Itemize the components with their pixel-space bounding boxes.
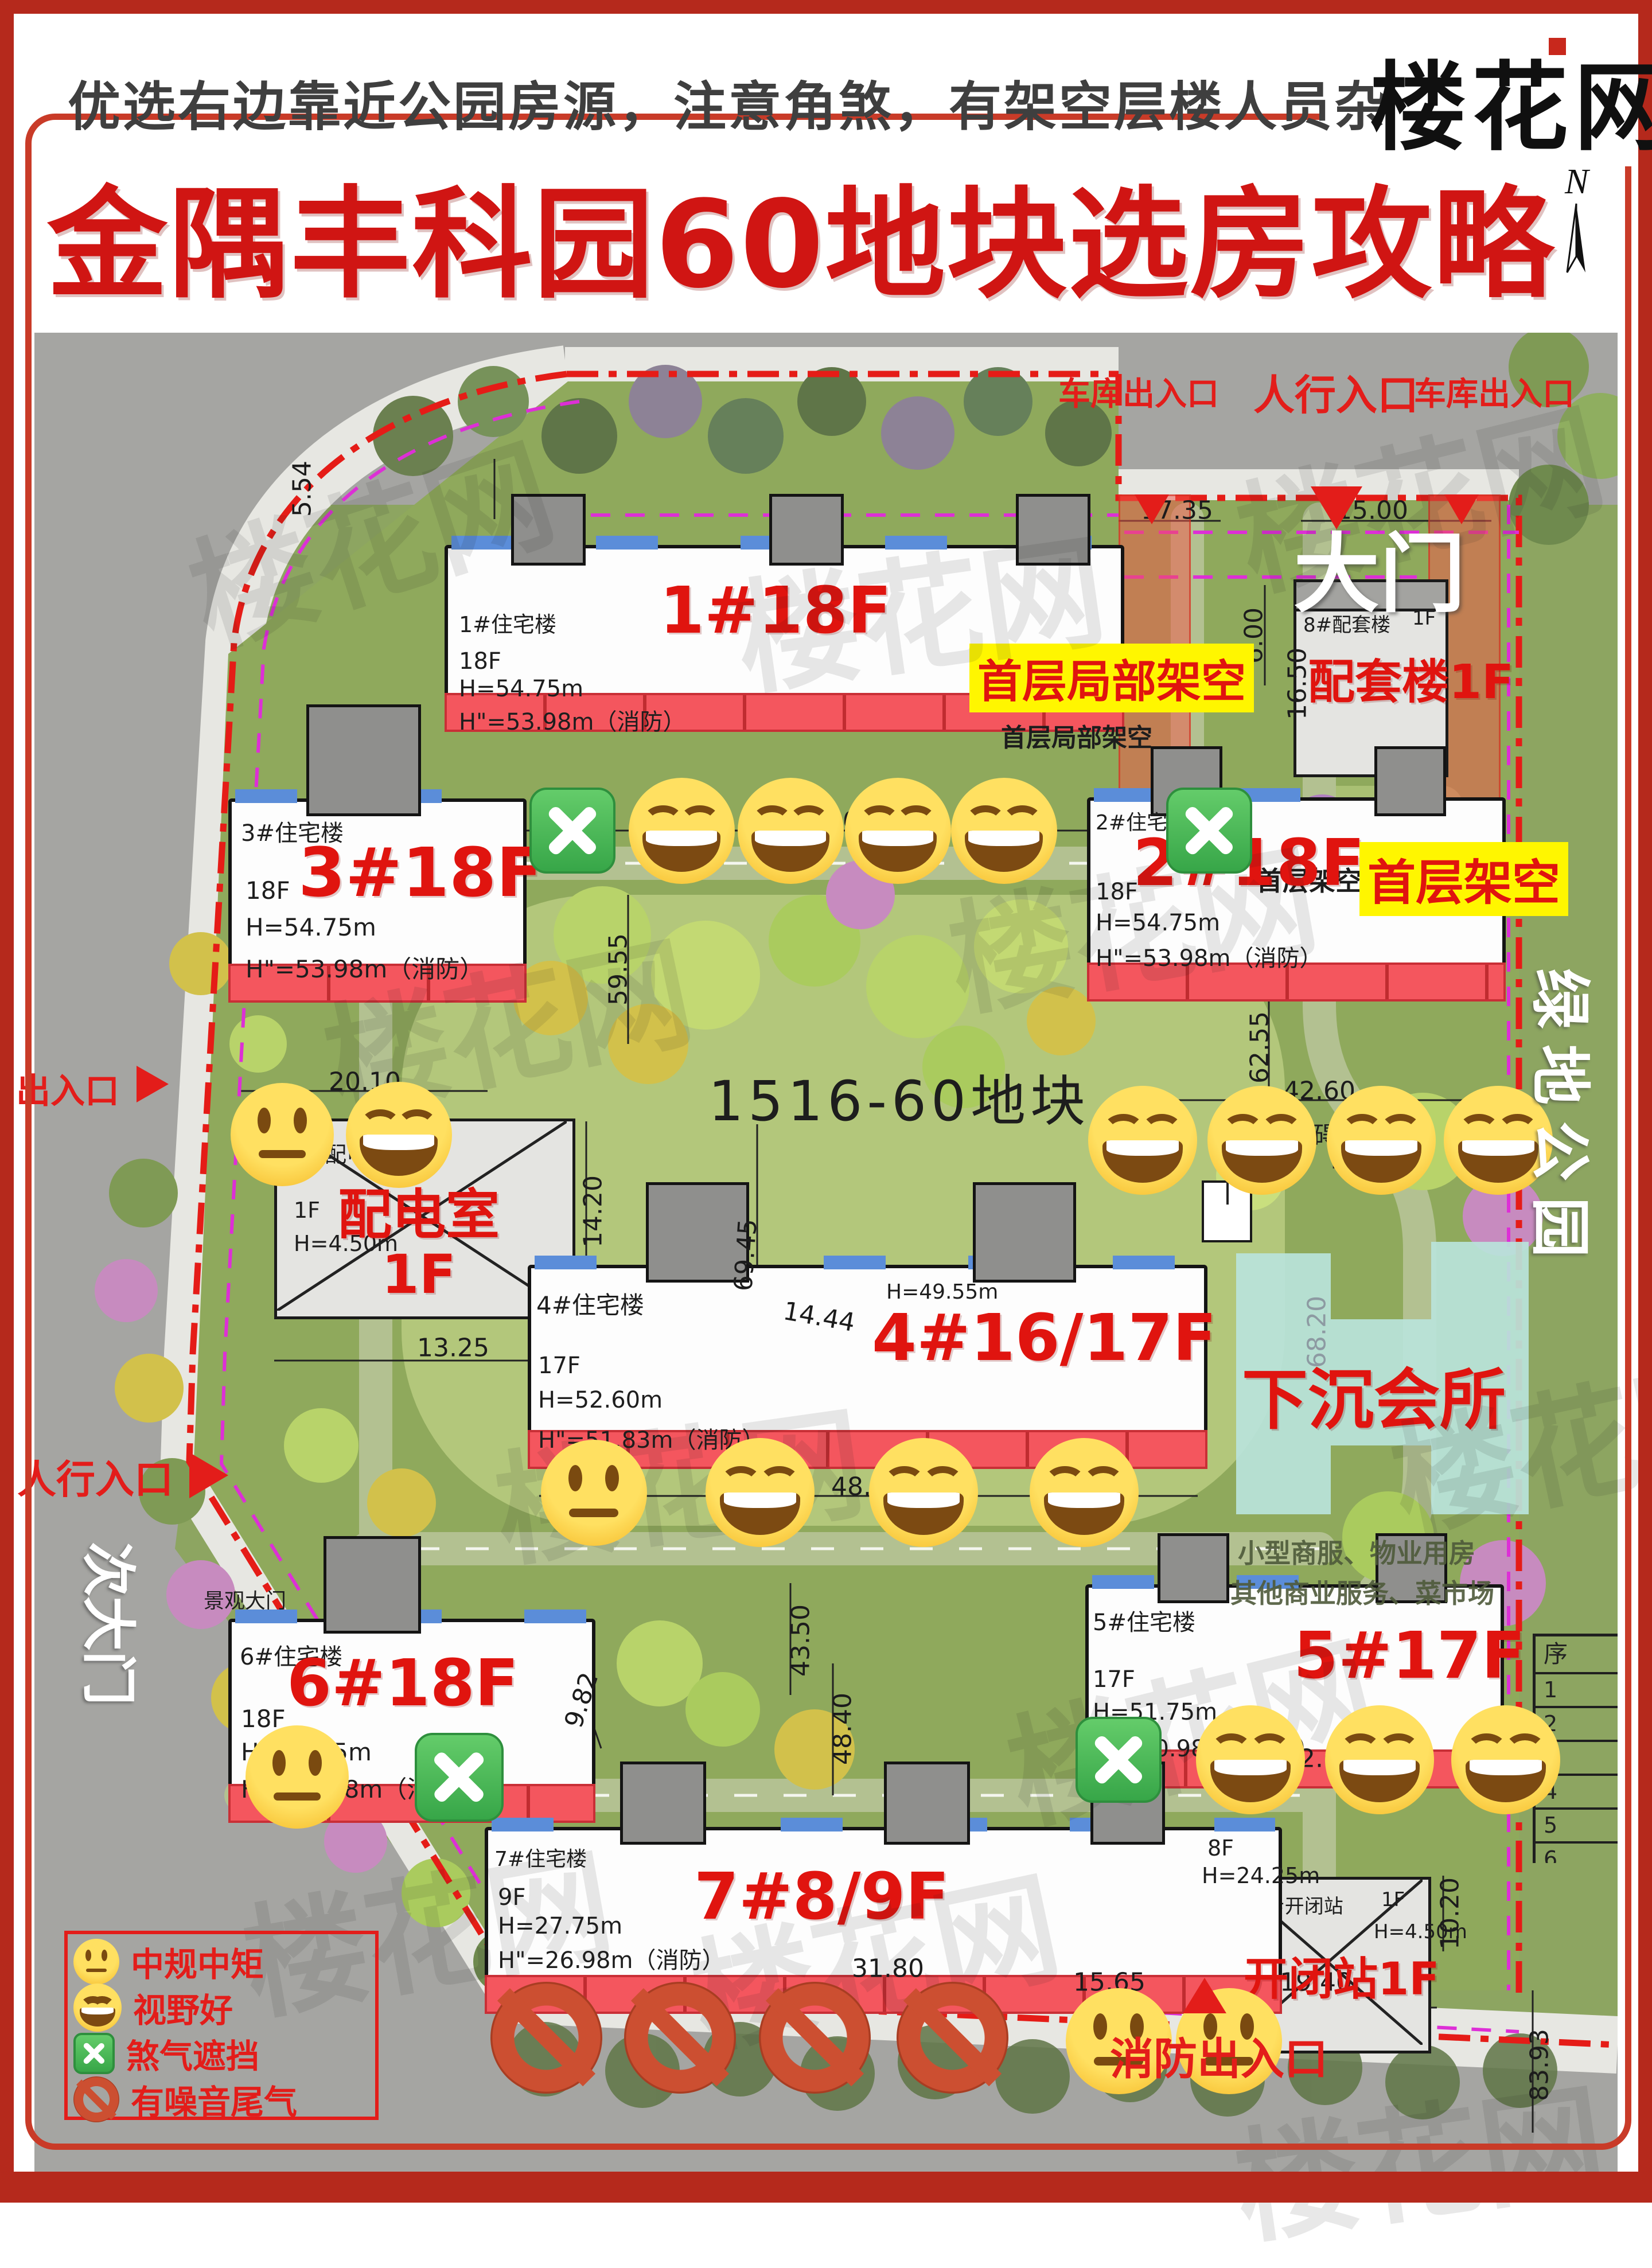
secondary-gate-label: 次大门 xyxy=(73,1542,152,1705)
nosign-emoji xyxy=(490,1982,602,2094)
legend-row-noise: 有噪音尾气 xyxy=(73,2076,369,2122)
b6-red-tag: 6#18F xyxy=(287,1646,519,1721)
b5-floors: 17F xyxy=(1093,1666,1135,1693)
b2-height-fire: H"=53.98m（消防） xyxy=(1096,940,1322,973)
dimension-label: 14.20 xyxy=(579,1175,608,1248)
side-exit-label: 出入口 xyxy=(16,1063,119,1113)
stair-core xyxy=(1016,494,1090,566)
switch-red-tag: 开闭站1F xyxy=(1244,1943,1440,2008)
logo-stamp-icon xyxy=(1549,38,1566,55)
dimension-label: 69.45 xyxy=(728,1218,763,1292)
green-x-icon xyxy=(73,2033,115,2074)
dimension-label: 48.40 xyxy=(828,1693,858,1765)
xmark-emoji xyxy=(529,788,615,874)
legend-label: 煞气遮挡 xyxy=(126,2029,259,2078)
b3-height-fire: H"=53.98m（消防） xyxy=(246,950,484,985)
stair-core xyxy=(306,704,421,816)
xmark-emoji xyxy=(415,1733,504,1822)
landscape-gate-left-label: 景观大门 xyxy=(204,1584,286,1614)
b1-height-fire: H"=53.98m（消防） xyxy=(459,703,685,736)
nosign-emoji xyxy=(624,1982,736,2094)
club-services-line1: 小型商服、物业用房 xyxy=(1238,1533,1475,1571)
b3-floors: 18F xyxy=(246,876,290,905)
fire-exit-label: 消防出入口 xyxy=(1110,2024,1328,2087)
legend-row-blocked: 煞气遮挡 xyxy=(73,2031,369,2076)
b7-floors: 9F xyxy=(498,1884,525,1911)
neutral-emoji xyxy=(231,1083,334,1186)
legend-row-goodview: 视野好 xyxy=(73,1985,369,2031)
dimension-label: 43.50 xyxy=(786,1604,816,1677)
club-services-line2: 其他商业服务、菜市场 xyxy=(1230,1573,1494,1611)
grin-emoji xyxy=(869,1438,978,1547)
dimension-label: 83.93 xyxy=(1525,2029,1554,2101)
b1-stilt-note: 首层局部架空 xyxy=(1001,717,1152,754)
no-entry-icon xyxy=(73,2076,119,2122)
site-logo: 楼花网 xyxy=(1370,30,1652,169)
page-subtitle: 优选右边靠近公园房源，注意角煞，有架空层楼人员杂 xyxy=(68,64,1389,141)
side-table-row: 1 xyxy=(1536,1672,1618,1706)
b1-red-tag: 1#18F xyxy=(660,574,891,648)
legend-label: 中规中矩 xyxy=(131,1938,264,1986)
grin-emoji xyxy=(706,1438,815,1547)
grin-emoji xyxy=(346,1082,452,1188)
stair-core xyxy=(511,494,586,566)
legend-label: 视野好 xyxy=(133,1983,233,2032)
stair-core xyxy=(973,1182,1076,1283)
grin-emoji xyxy=(1451,1705,1560,1814)
grin-emoji xyxy=(845,778,951,884)
stair-core xyxy=(1158,1533,1229,1603)
b4-extra-height: H=49.55m xyxy=(886,1280,998,1304)
legend: 中规中矩 视野好 煞气遮挡 有噪音尾气 xyxy=(64,1931,379,2120)
grin-emoji xyxy=(738,778,844,884)
dimension-label: 59.55 xyxy=(604,933,633,1006)
park-label: 绿地公园 xyxy=(1521,968,1608,1273)
neutral-emoji xyxy=(246,1725,349,1829)
b2-height: H=54.75m xyxy=(1096,910,1220,936)
grin-face-icon xyxy=(73,1983,122,2032)
stair-core xyxy=(1374,746,1446,816)
b5-red-tag: 5#17F xyxy=(1293,1619,1525,1693)
grin-emoji xyxy=(1196,1705,1305,1814)
gate-arrow-icon xyxy=(1135,494,1169,524)
garage-entrance-left-label: 车库出入口 xyxy=(1058,368,1219,415)
stair-core xyxy=(620,1762,706,1845)
b7-extra-floors: 8F xyxy=(1207,1836,1234,1861)
grin-emoji xyxy=(629,778,735,884)
b7-height: H=27.75m xyxy=(498,1913,622,1939)
balcony-strip xyxy=(535,1256,1201,1269)
bottom-accent-bar xyxy=(14,2172,1638,2189)
b3-red-tag: 3#18F xyxy=(298,833,543,912)
grin-emoji xyxy=(1207,1086,1316,1195)
legend-row-average: 中规中矩 xyxy=(73,1939,369,1985)
b1-height: H=54.75m xyxy=(459,676,583,702)
compass-n-label: N xyxy=(1565,162,1588,201)
neutral-face-icon xyxy=(73,1939,119,1985)
nosign-emoji xyxy=(759,1982,871,2094)
pedestrian-left-arrow-icon xyxy=(189,1452,228,1498)
grin-emoji xyxy=(951,778,1057,884)
podium-red-tag: 配套楼1F xyxy=(1308,644,1514,712)
b5-name: 5#住宅楼 xyxy=(1093,1604,1195,1637)
dimension-label: 10.20 xyxy=(1436,1877,1465,1950)
xmark-emoji xyxy=(1076,1717,1162,1803)
b4-height: H=52.60m xyxy=(538,1387,663,1413)
side-exit-arrow-icon xyxy=(137,1066,169,1102)
b1-floors: 18F xyxy=(459,648,501,675)
b4-red-tag: 4#16/17F xyxy=(872,1301,1217,1375)
power-red-tag-line2: 1F xyxy=(298,1249,539,1300)
b1-name: 1#住宅楼 xyxy=(459,607,556,638)
main-gate-label: 大门 xyxy=(1293,505,1466,629)
dimension-label: 62.55 xyxy=(1245,1011,1275,1084)
pedestrian-entrance-left-label: 人行入口 xyxy=(17,1448,173,1505)
grin-emoji xyxy=(1325,1705,1434,1814)
dimension-label: 31.80 xyxy=(852,1954,924,1983)
b7-red-tag: 7#8/9F xyxy=(694,1860,949,1934)
north-compass-icon: N xyxy=(1565,162,1588,286)
b2-stilt-badge: 首层架空 xyxy=(1359,842,1568,916)
fire-exit-arrow-icon xyxy=(1183,1978,1226,2013)
plot-label: 1516-60地块 xyxy=(708,1057,1090,1136)
nosign-emoji xyxy=(897,1982,1008,2094)
dimension-label: 5.54 xyxy=(288,461,317,517)
b7-name: 7#住宅楼 xyxy=(494,1842,587,1872)
page-title: 金隅丰科园60地块选房攻略 xyxy=(47,147,1554,321)
b4-name: 4#住宅楼 xyxy=(536,1286,644,1321)
grin-emoji xyxy=(1088,1086,1197,1195)
side-table-row: 6 xyxy=(1536,1841,1618,1863)
xmark-emoji xyxy=(1166,788,1252,874)
stair-core xyxy=(324,1536,421,1634)
grin-emoji xyxy=(1327,1086,1436,1195)
b4-floors: 17F xyxy=(538,1353,580,1379)
neutral-emoji xyxy=(541,1440,647,1546)
garage-entrance-right-label: 车库出入口 xyxy=(1414,368,1575,415)
clubhouse-red-tag: 下沉会所 xyxy=(1242,1347,1506,1442)
side-table-header: 序 xyxy=(1536,1636,1618,1672)
legend-label: 有噪音尾气 xyxy=(131,2075,297,2123)
side-table-row: 5 xyxy=(1536,1807,1618,1841)
stair-core xyxy=(769,494,844,566)
b7-height-fire: H"=26.98m（消防） xyxy=(498,1942,724,1975)
switch-floors: 1F xyxy=(1381,1888,1405,1911)
b7-extra-height: H=24.25m xyxy=(1202,1863,1320,1888)
dimension-label: 13.25 xyxy=(417,1334,489,1363)
stair-core xyxy=(884,1762,970,1845)
pedestrian-entrance-top-label: 人行入口 xyxy=(1253,361,1419,422)
b1-stilt-badge: 首层局部架空 xyxy=(969,644,1254,712)
b2-floors: 18F xyxy=(1096,879,1138,905)
power-red-tag: 配电室 1F xyxy=(298,1171,539,1300)
north-arrow-icon xyxy=(1565,202,1588,277)
grin-emoji xyxy=(1030,1438,1139,1547)
b3-height: H=54.75m xyxy=(246,913,376,941)
